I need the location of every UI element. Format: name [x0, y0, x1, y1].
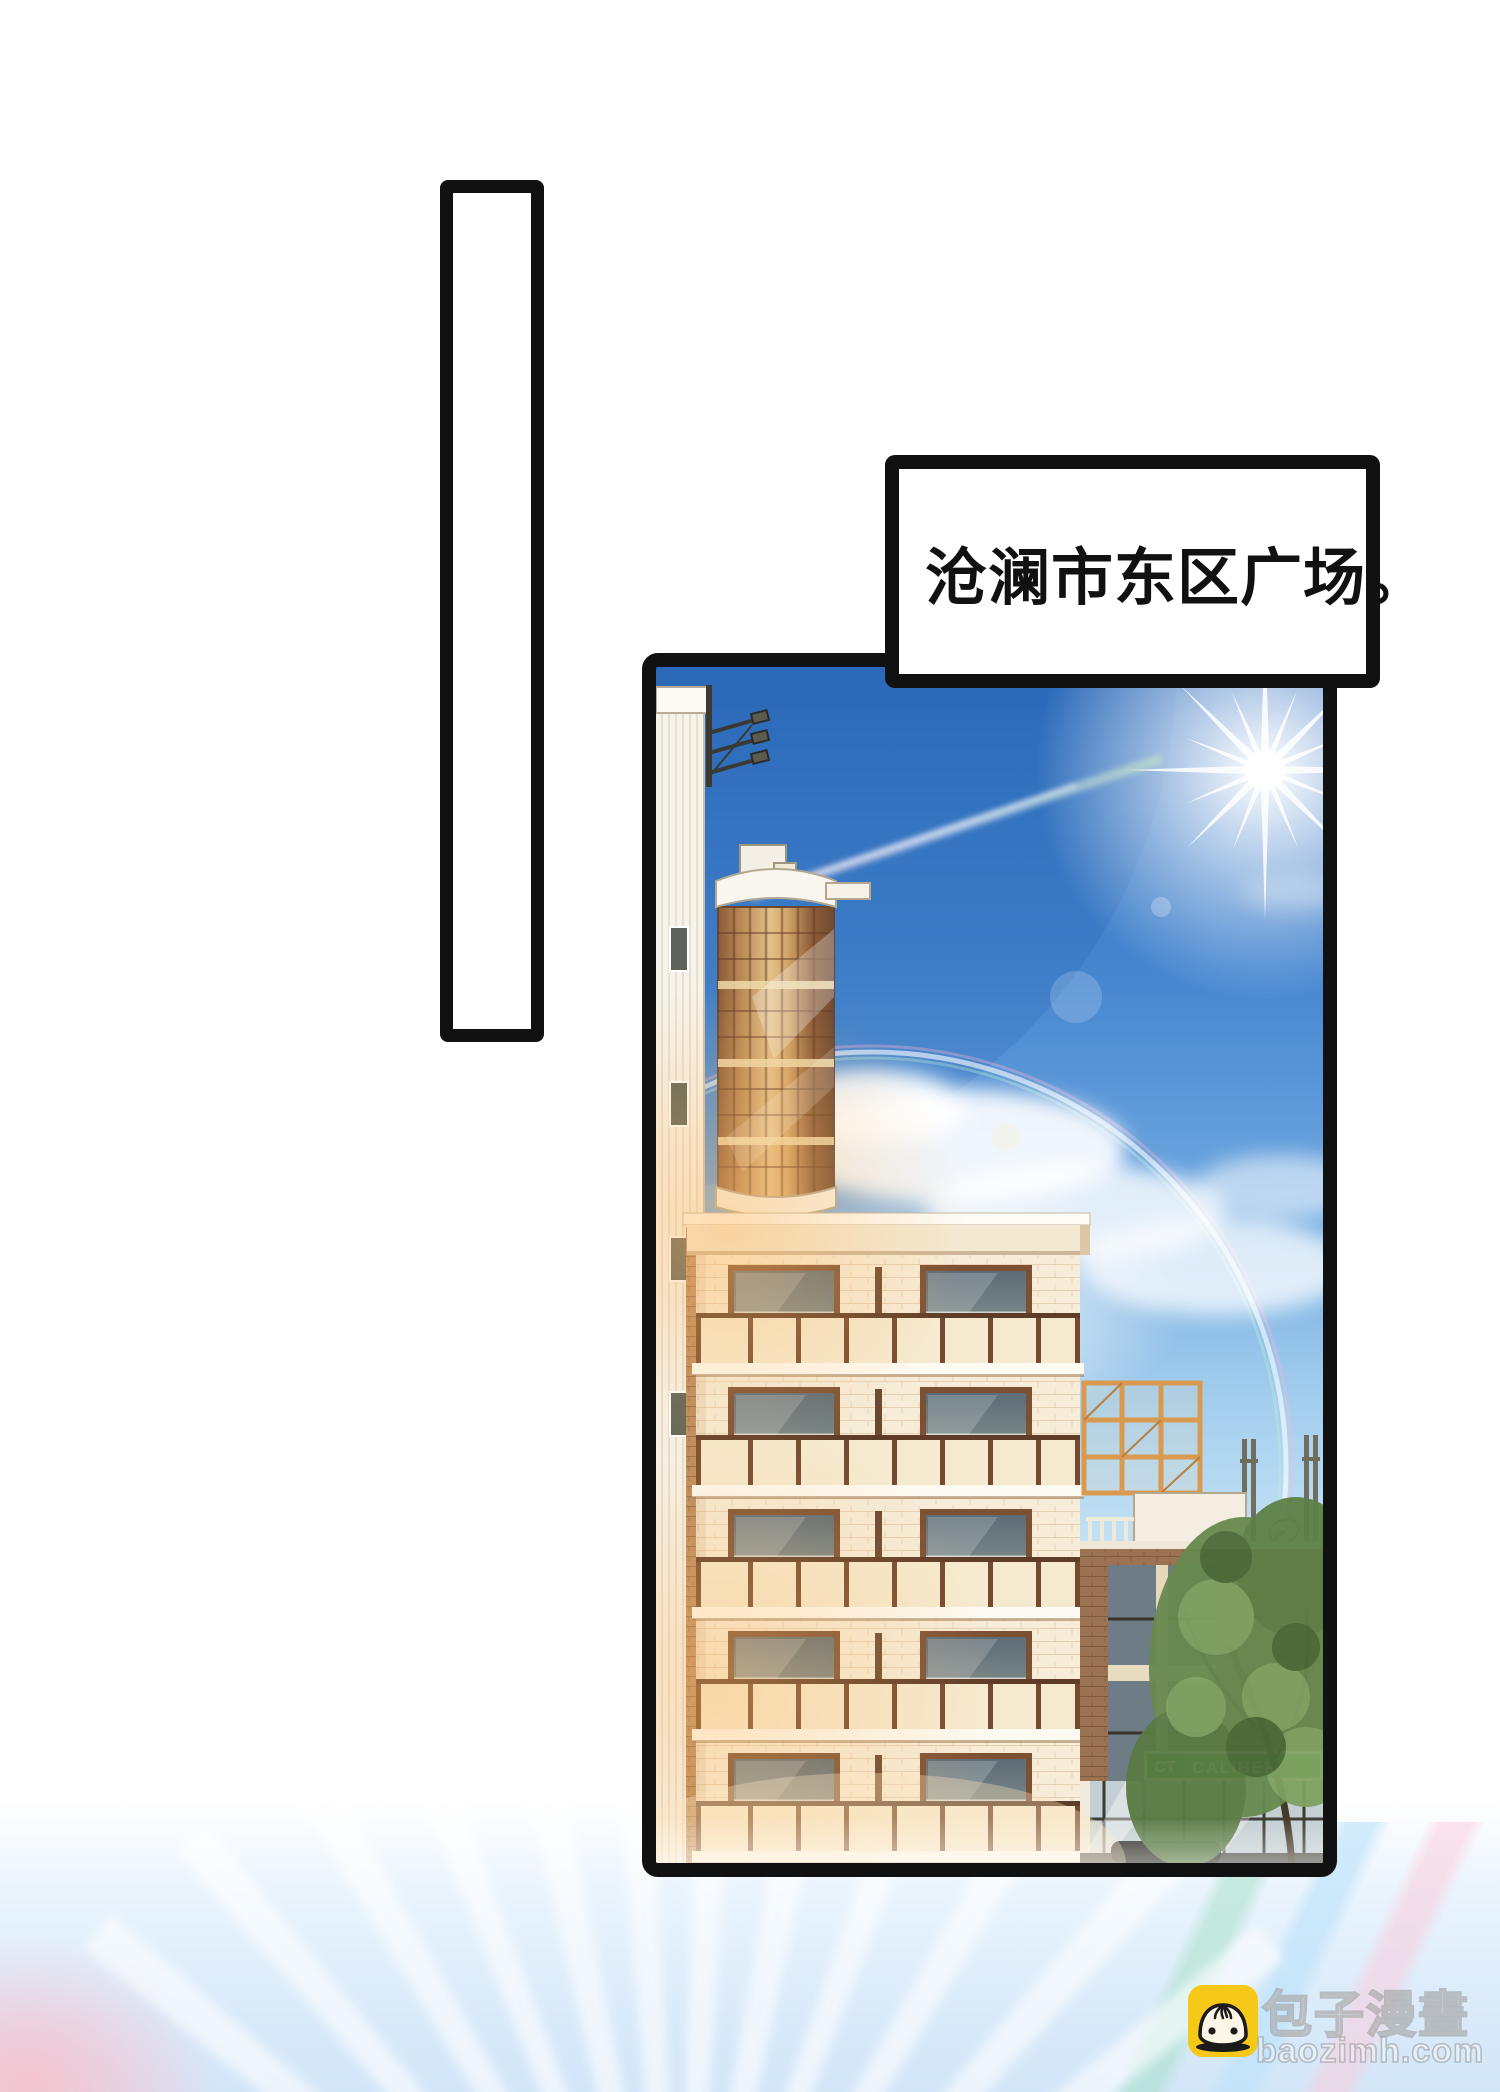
- rooftop-billboard: [1084, 1383, 1200, 1493]
- baozi-bun-icon: [1188, 1985, 1258, 2057]
- watermark-url: baozimh.com: [1256, 2034, 1484, 2068]
- caption-box: 沧澜市东区广场。: [885, 455, 1380, 688]
- city-scene: CT CALIBER: [656, 667, 1323, 1863]
- watermark: 包子漫畫 baozimh.com: [1180, 1978, 1500, 2092]
- empty-vertical-panel: [440, 180, 544, 1042]
- city-panel: CT CALIBER: [642, 653, 1337, 1877]
- caption-text: 沧澜市东区广场。: [925, 527, 1429, 617]
